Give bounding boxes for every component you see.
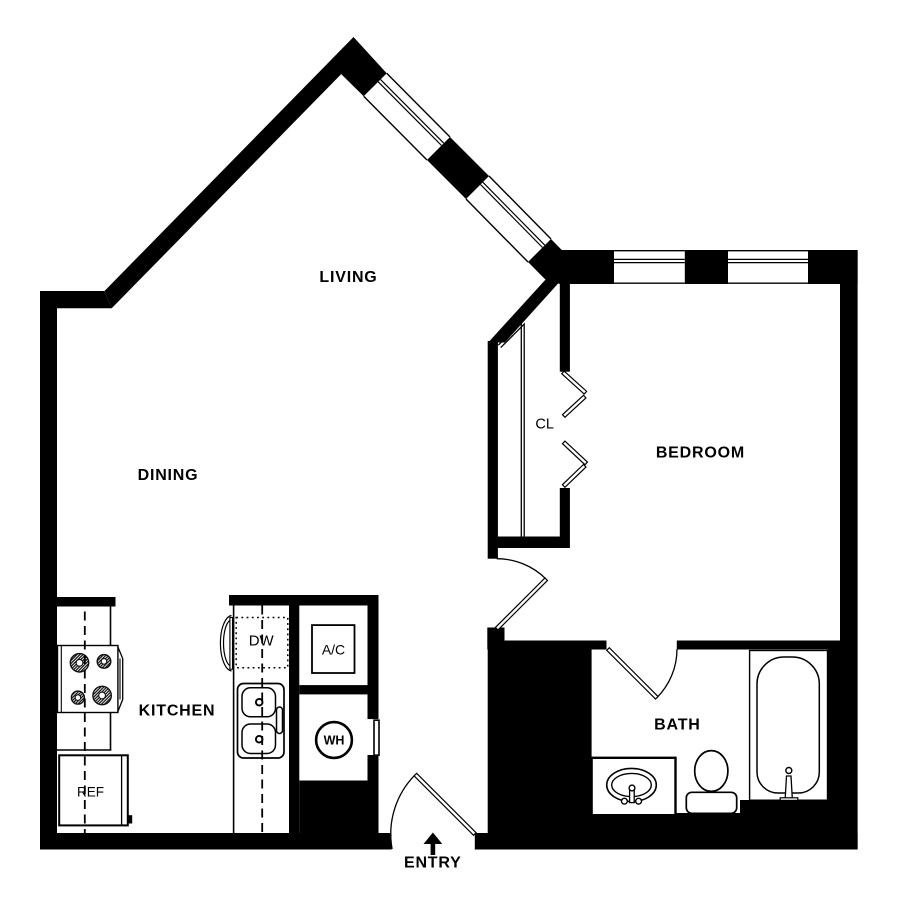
svg-text:DW: DW (249, 632, 275, 649)
svg-text:A/C: A/C (322, 642, 345, 658)
svg-text:DINING: DINING (138, 467, 199, 484)
svg-text:KITCHEN: KITCHEN (139, 702, 216, 719)
svg-text:BEDROOM: BEDROOM (656, 444, 745, 461)
svg-text:WH: WH (324, 734, 345, 748)
svg-text:LIVING: LIVING (319, 269, 377, 286)
svg-text:BATH: BATH (654, 716, 700, 733)
svg-text:ENTRY: ENTRY (404, 855, 462, 872)
svg-text:REF: REF (77, 784, 104, 799)
svg-text:CL: CL (535, 416, 554, 432)
